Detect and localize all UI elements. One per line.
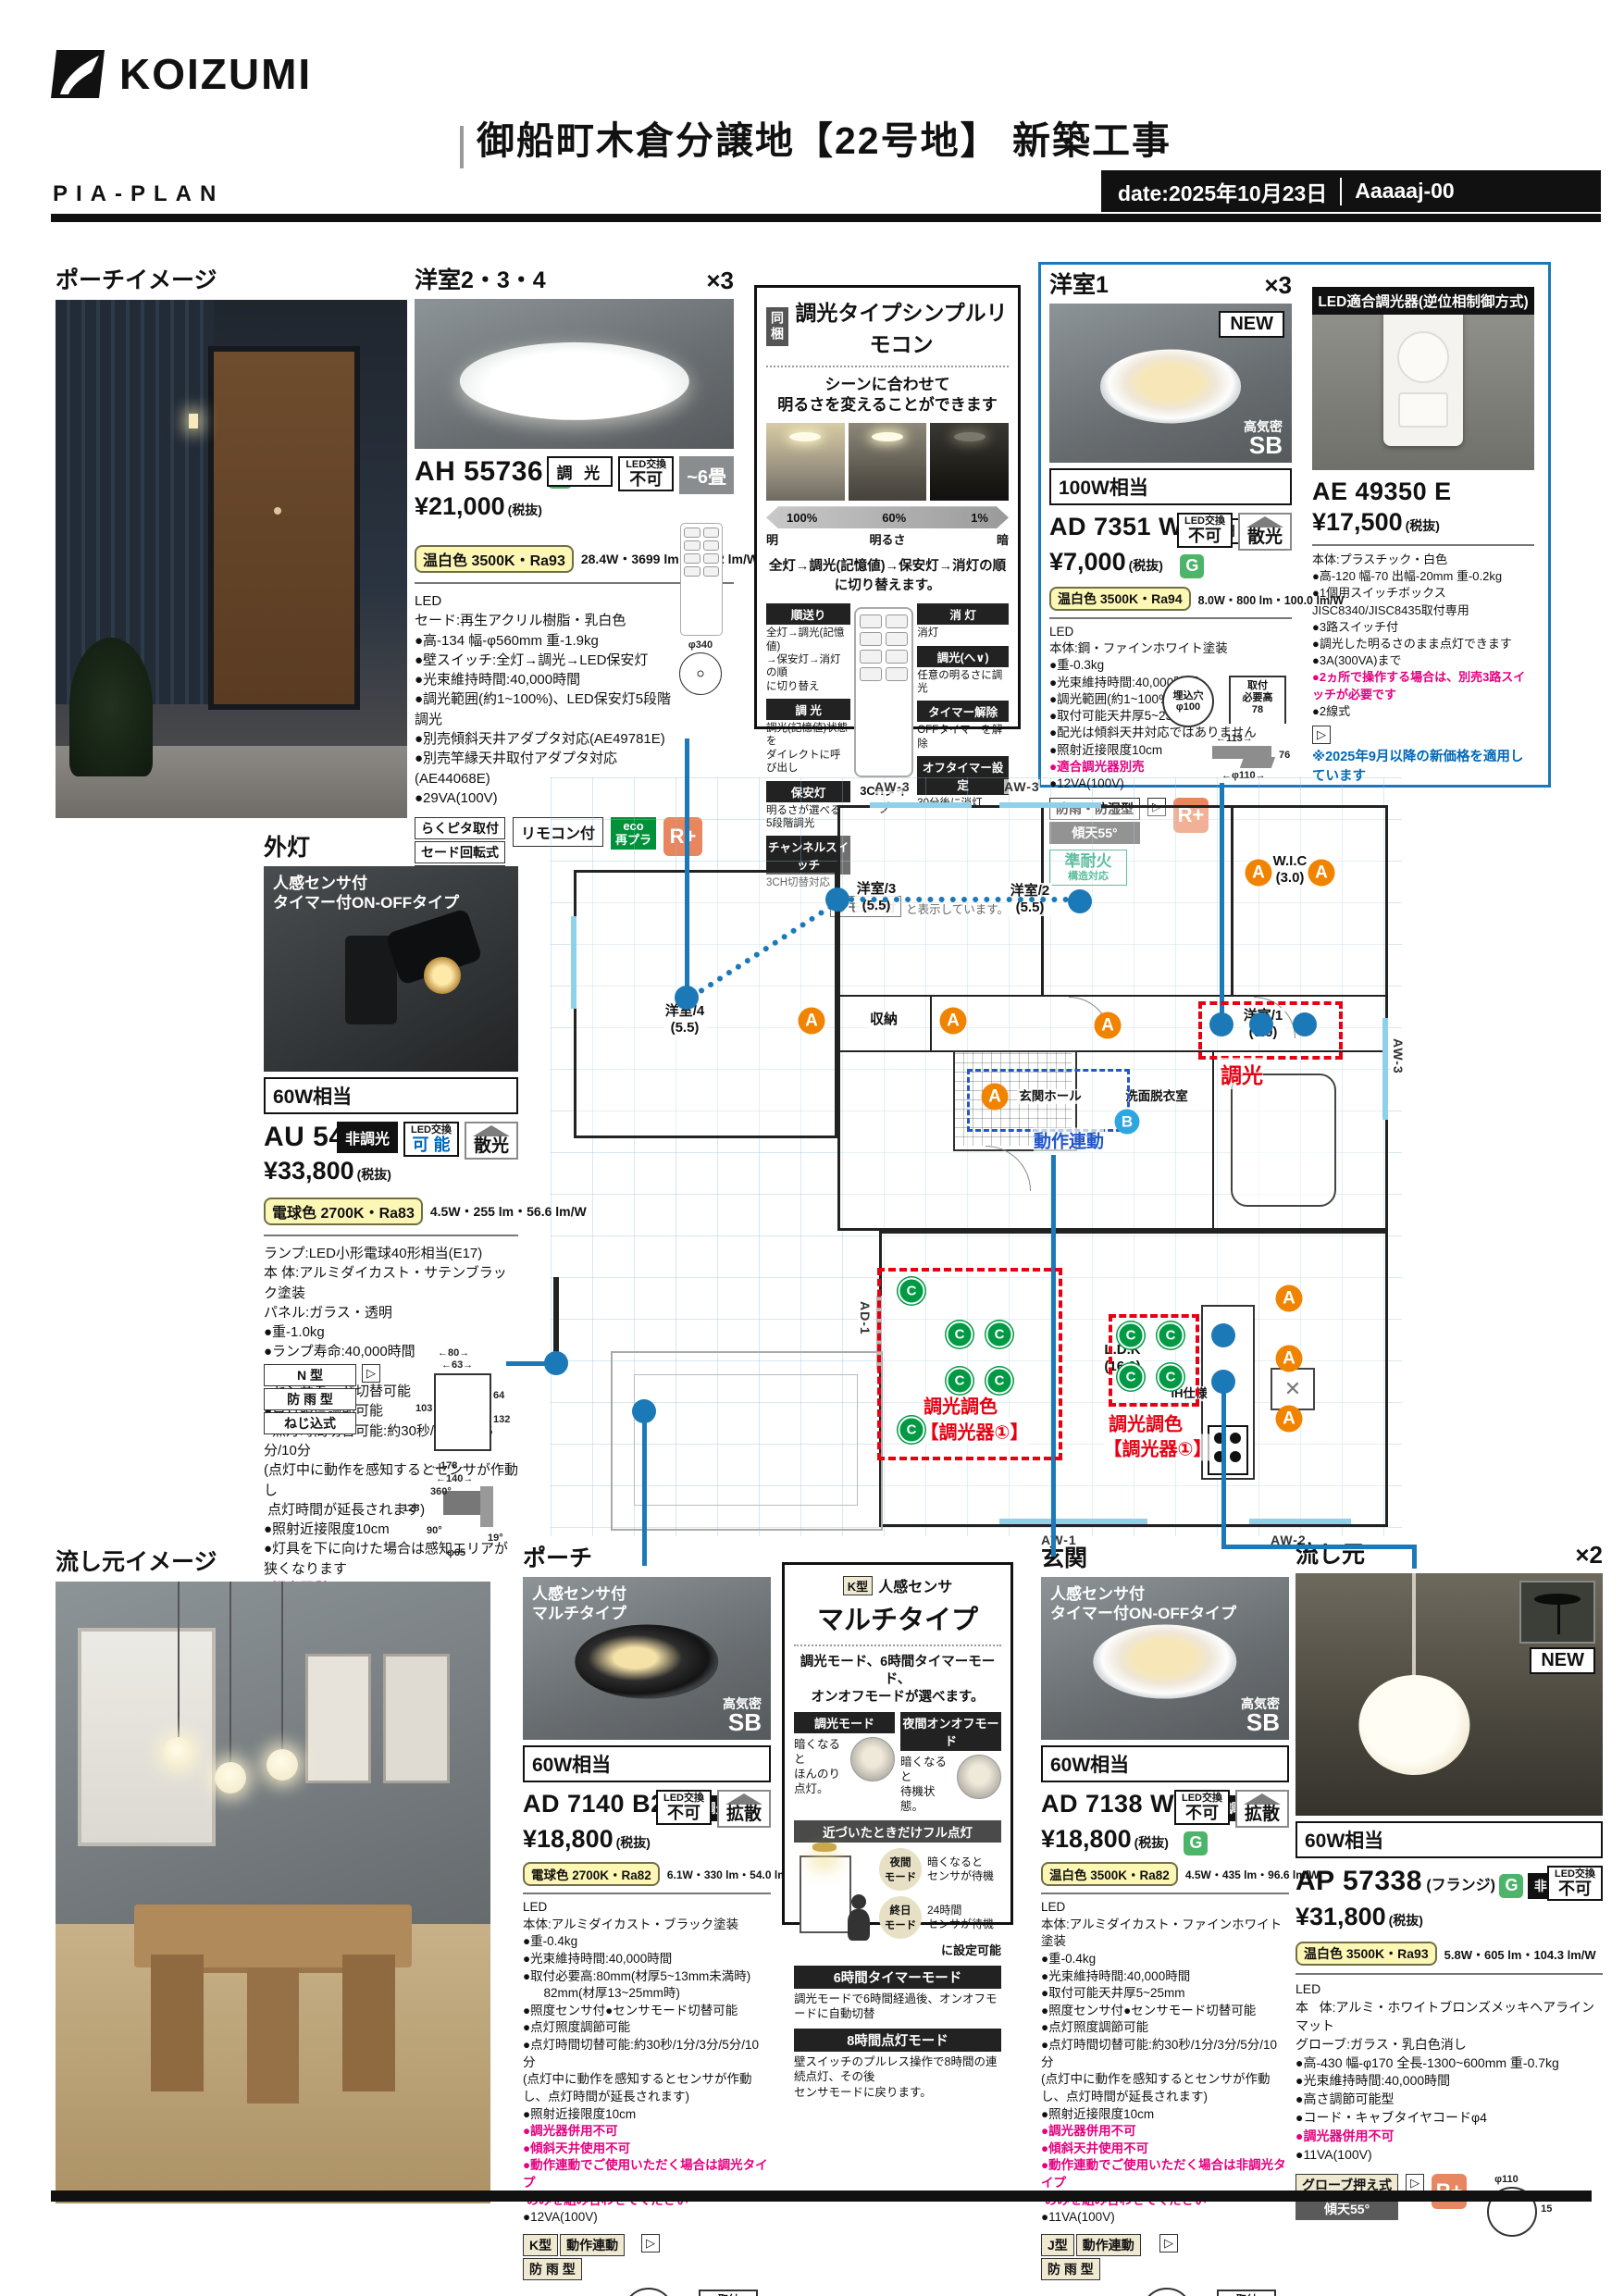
feature-line: ●照度センサ付●センサモード切替可能	[523, 2003, 771, 2020]
feature-list: 本体:プラスチック・白色●高-120 幅-70 出幅-20mm 重-0.2kg●…	[1312, 552, 1534, 720]
mode-photo	[957, 1755, 1001, 1799]
feature-line: セード:再生アクリル樹脂・乳白色	[415, 611, 679, 630]
marker-a: A	[1246, 860, 1272, 887]
sink-image-title: 流し元イメージ	[56, 1544, 490, 1577]
porch-image-photo	[56, 300, 407, 818]
marker-a: A	[1276, 1346, 1303, 1372]
feature-line: ●光束維持時間:40,000時間	[1041, 1968, 1289, 1986]
marker-c: C	[986, 1368, 1013, 1395]
feature-list: LED本 体:アルミ・ホワイトブロンズメッキヘアラインマットグローブ:ガラス・乳…	[1295, 1980, 1603, 2165]
white-downlight-image	[1093, 1624, 1236, 1699]
dimcolor-label: 調光調色	[1109, 1409, 1183, 1436]
feature-line: ●点灯時間切替可能:約30秒/1分/3分/5分/10分	[523, 2037, 771, 2071]
beam-icon	[725, 1793, 762, 1805]
feature-line: 本 体:アルミダイカスト・サテンブラック塗装	[264, 1263, 518, 1303]
connector-sink-h	[1221, 1545, 1417, 1549]
feature-line: LED	[1049, 624, 1292, 640]
multi-type-title: マルチタイプ	[794, 1598, 1001, 1637]
wall-art	[386, 1657, 447, 1781]
marker-c: C	[1158, 1364, 1184, 1391]
feature-list: LED本体:アルミダイカスト・ブラック塗装●重-0.4kg●光束維持時間:40,…	[523, 1899, 771, 2227]
sensor-label: 人感センサ	[878, 1574, 952, 1596]
bathtub	[1231, 1074, 1336, 1207]
tag: 防 雨 型	[1041, 2258, 1100, 2280]
yoshitsu234-model: AH 55736	[415, 456, 543, 487]
marker-a: A	[1308, 860, 1335, 887]
beam-icon	[1244, 1793, 1281, 1805]
feature-line: ●傾斜天井使用不可	[1041, 2141, 1289, 2158]
feature-line: ●光束維持時間:40,000時間	[1295, 2072, 1603, 2091]
remote-device	[854, 607, 913, 777]
porch-door-knob	[274, 507, 281, 515]
remote-function: 消 灯 消灯	[917, 603, 1009, 639]
g-badge: G	[1180, 554, 1204, 578]
catalog-page: KOIZUMI PIA-PLAN 御船町木倉分譲地【22号地】 新築工事 dat…	[0, 0, 1624, 2296]
black-downlight-image	[575, 1624, 718, 1699]
remote-panel-title: 調光タイプシンプルリモコン	[794, 295, 1009, 358]
title-tick	[460, 126, 464, 168]
connector-yo234	[685, 738, 689, 999]
feature-line: 本体:アルミダイカスト・ブラック塗装	[523, 1917, 771, 1934]
connector-porch	[642, 1414, 647, 1566]
feature-list: LED本体:アルミダイカスト・ファインホワイト塗装●重-0.4kg●光束維持時間…	[1041, 1899, 1289, 2227]
marker-c: C	[986, 1322, 1013, 1348]
brightness-arrow: 100%60%1%	[766, 506, 1009, 528]
marker-a: A	[1276, 1285, 1303, 1312]
tag: 防 雨 型	[264, 1388, 356, 1410]
feature-list: LEDセード:再生アクリル樹脂・乳白色●高-134 幅-φ560mm 重-1.9…	[415, 591, 679, 808]
remote-function: 調光(へ∨) 任意の明るさに調光	[917, 646, 1009, 696]
yoshitsu234-room-label: 洋室2・3・4	[415, 262, 546, 295]
feature-line: 本体:プラスチック・白色	[1312, 552, 1534, 568]
full-on-label: 近づいたときだけフル点灯	[794, 1820, 1001, 1843]
feature-line: 本 体:アルミ・ホワイトブロンズメッキヘアラインマット	[1295, 1999, 1603, 2036]
tag: N 型	[264, 1364, 356, 1386]
tatami-badge: ~6畳	[679, 456, 734, 494]
feature-line: ●調光器併用不可	[1295, 2128, 1603, 2146]
fixture-dot	[1211, 1323, 1235, 1347]
yoshitsu234-qty: ×3	[706, 267, 734, 295]
pendant-cord	[281, 1582, 283, 1756]
dimension-diagram: 埋込穴 φ100 取付 必要高 78 ←108→ 75 3 ←φ110→	[1041, 2288, 1289, 2296]
remote-function: 順送り 全灯→調光(記憶値) →保安灯→消灯の順 に切り替え	[766, 603, 850, 693]
tag: 動作連動	[560, 2234, 625, 2256]
sb-airtight-tag: 高気密SB	[1241, 1697, 1280, 1734]
feature-line: LED	[523, 1899, 771, 1917]
beam-icon	[1246, 516, 1283, 527]
feature-line: ●重-0.4kg	[523, 1933, 771, 1951]
downlight-image	[1100, 350, 1241, 423]
led-no-replace-badge: LED交換不可	[1547, 1866, 1603, 1901]
footer-rule	[51, 2191, 1592, 2202]
dimcolor-label: 調光調色	[924, 1392, 998, 1419]
feature-line: ●取付可能天井厚5~25mm	[1041, 1985, 1289, 2003]
wide-beam-badge: 拡散	[717, 1790, 771, 1828]
yoshitsu1-price: ¥7,000	[1049, 548, 1126, 576]
led-replace-ok-badge: LED交換可 能	[403, 1122, 459, 1157]
connector-sink-v2	[1412, 1545, 1417, 1569]
dimmable-badge: 調 光	[547, 456, 613, 487]
fixture-dot	[1293, 1012, 1317, 1036]
feature-line: LED	[1295, 1980, 1603, 1999]
color-temp-chip: 電球色 2700K・Ra83	[264, 1198, 423, 1225]
window-label: AW-3	[1004, 779, 1040, 794]
tax-label: (税抜)	[1389, 1913, 1423, 1928]
sink-title: 流し元	[1295, 1536, 1365, 1570]
g-badge: G	[1184, 1831, 1208, 1855]
marker-a: A	[940, 1008, 967, 1035]
remote-function: 調 光 調光(記憶値)状態を ダイレクトに呼び出し	[766, 699, 850, 776]
pendant-globe	[267, 1749, 298, 1781]
scene-dark	[930, 423, 1009, 501]
tax-label: (税抜)	[1406, 518, 1440, 533]
pendant-globe	[163, 1737, 194, 1769]
remote-function: タイマー解除 OFFタイマーを解除	[917, 701, 1009, 751]
dim-mode-col: 調光モード 暗くなると ほんのり点灯。	[794, 1712, 895, 1815]
watt-equivalent: 60W相当	[1295, 1821, 1603, 1858]
marker-c: C	[947, 1322, 973, 1348]
dimmer-card: LED適合調光器(逆位相制御方式) AE 49350 E ¥17,500(税抜)…	[1312, 287, 1534, 785]
color-temp-chip: 電球色 2700K・Ra82	[523, 1862, 660, 1886]
tax-label: (税抜)	[357, 1167, 391, 1182]
island-hatch: ✕	[1271, 1368, 1315, 1410]
type-tags: J型動作連動防 雨 型	[1041, 2234, 1152, 2280]
room-label-wash: 洗面脱衣室	[1123, 1089, 1190, 1104]
window	[81, 1632, 212, 1843]
outdoor-light-photo: 人感センサ付タイマー付ON-OFFタイプ	[264, 866, 518, 1072]
dimmer-model: AE 49350 E	[1312, 478, 1452, 505]
brand-header: KOIZUMI	[51, 48, 312, 100]
watt-equivalent: 60W相当	[1041, 1745, 1289, 1782]
pendant-cord	[229, 1582, 231, 1769]
dimmer-ref-label: 【調光器①】	[1104, 1434, 1212, 1461]
switch-sequence: 全灯→調光(記憶値)→保安灯→消灯の順に切り替えます。	[766, 555, 1009, 594]
dimmer-device-image	[1383, 315, 1463, 446]
feature-line: ●点灯時間切替可能:約30秒/1分/3分/5分/10分	[1041, 2037, 1289, 2071]
dotted-divider	[766, 366, 1009, 367]
feature-line: ●高-134 幅-φ560mm 重-1.9kg	[415, 631, 679, 651]
fixture-dot	[1211, 1370, 1235, 1394]
dimmer-photo	[1312, 315, 1534, 470]
timer8-label: 8時間点灯モード	[794, 2029, 1001, 2052]
led-no-replace-badge: LED交換不可	[656, 1790, 712, 1825]
multi-overlay: マルチタイプ	[532, 1604, 626, 1623]
fixture-dot	[1249, 1012, 1273, 1036]
color-temp-chip: 温白色 3500K・Ra82	[1041, 1862, 1178, 1886]
yoshitsu1-room-label: 洋室1	[1049, 267, 1109, 300]
g-badge: G	[1499, 1874, 1523, 1898]
color-temp-chip: 温白色 3500K・Ra94	[1049, 587, 1191, 611]
pendant-rod	[1412, 1573, 1416, 1682]
door-label: AD-1	[858, 1301, 873, 1335]
diameter-diagram: φ340	[675, 639, 726, 697]
pendant-globe-image	[1359, 1675, 1470, 1775]
linked-zone-label: 動作連動	[1034, 1128, 1104, 1153]
feature-line: ●重-0.3kg	[1049, 657, 1292, 674]
feature-line: ●調光した明るさのまま点灯できます	[1312, 636, 1534, 652]
marker-b: B	[1115, 1110, 1140, 1135]
tag: 動作連動	[1076, 2234, 1141, 2256]
type-tags: K型動作連動防 雨 型	[523, 2234, 634, 2280]
yoshitsu234-photo	[415, 299, 734, 449]
fixture-dot	[632, 1399, 656, 1423]
bundled-badge: 同梱	[766, 307, 788, 346]
outdoor-light-title: 外灯	[264, 829, 518, 863]
doc-code: Aaaaaj-00	[1355, 179, 1454, 204]
led-no-replace-badge: LED交換不可	[1174, 1790, 1230, 1825]
feature-line: ●点灯照度調節可能	[523, 2019, 771, 2037]
feature-line: LED	[415, 591, 679, 611]
marker-a: A	[1095, 1012, 1122, 1039]
window-label: AW-3	[1391, 1038, 1406, 1074]
ceiling-light-image	[459, 342, 688, 420]
sb-airtight-tag: 高気密SB	[1244, 420, 1283, 457]
feature-line: グローブ:ガラス・乳白色消し	[1295, 2036, 1603, 2054]
multi-type-panel: K型 人感センサ マルチタイプ 調光モード、6時間タイマーモード、 オンオフモー…	[782, 1562, 1013, 1925]
watt-equivalent: 60W相当	[523, 1745, 771, 1782]
night-mode-badge: 夜間 モード	[879, 1848, 922, 1891]
feature-line: ランプ:LED小形電球40形相当(E17)	[264, 1244, 518, 1263]
sensor-overlay: 人感センサ付	[1050, 1584, 1236, 1604]
feature-line: ●11VA(100V)	[1295, 2146, 1603, 2165]
scene-mid	[849, 423, 927, 501]
diffuse-badge: 散光	[1238, 513, 1292, 551]
watt-equivalent: 60W相当	[264, 1077, 518, 1114]
chair	[342, 1955, 394, 2091]
dimmer-price: ¥17,500	[1312, 508, 1403, 536]
orientation-icon: ▷	[1159, 2234, 1178, 2253]
genkan-price: ¥18,800	[1041, 1825, 1132, 1853]
marker-c: C	[899, 1278, 925, 1305]
mode-photo	[850, 1737, 895, 1781]
connector-yo1	[1220, 783, 1224, 1025]
chair	[247, 1967, 299, 2104]
feature-line: ●調光器併用不可	[523, 2123, 771, 2141]
header-rule	[51, 214, 1601, 222]
outdoor-light-card: 外灯 人感センサ付タイマー付ON-OFFタイプ 60W相当 AU 54113 ¥…	[264, 829, 518, 1632]
porch-slat-wall	[56, 300, 214, 704]
dim-zone-label: 調光	[1221, 1058, 1263, 1089]
genkan-photo: 人感センサ付タイマー付ON-OFFタイプ 高気密SB	[1041, 1577, 1289, 1740]
floor-plan: ✕ AW-3 AW-3 AW-3 AW-1 AW-2 AD-1 洋室/4(5.5…	[551, 777, 1402, 1536]
brand-name: KOIZUMI	[119, 49, 312, 99]
feature-line: (点灯中に動作を感知するとセンサが作動し、点灯時間が延長されます)	[523, 2071, 771, 2105]
feature-line: ●取付必要高:80mm(材厚5~13mm未満時)	[523, 1968, 771, 1986]
stove	[1208, 1425, 1248, 1475]
feature-line: ●2ヵ所で操作する場合は、別売3路スイッチが必要です	[1312, 669, 1534, 702]
marker-a: A	[1276, 1406, 1303, 1433]
feature-line: ●点灯照度調節可能	[1041, 2019, 1289, 2037]
tax-label: (税抜)	[1129, 558, 1163, 573]
wattage-spec: 28.4W・3699 lm・130.2 lm/W	[581, 550, 759, 568]
dimension-diagram: φ110 15	[1474, 2174, 1557, 2239]
date-divider	[1340, 178, 1342, 205]
porch-photo: 人感センサ付マルチタイプ 高気密SB	[523, 1577, 771, 1740]
timer6-desc: 調光モードで6時間経過後、オンオフモードに自動切替	[794, 1992, 1001, 2022]
marker-c: C	[1158, 1322, 1184, 1349]
tax-label: (税抜)	[1134, 1835, 1169, 1850]
led-no-replace-badge: LED交換不可	[618, 456, 674, 491]
porch-image-section: ポーチイメージ	[56, 262, 407, 818]
timer-overlay: タイマー付ON-OFFタイプ	[1050, 1604, 1236, 1623]
person-glyph	[848, 1909, 870, 1941]
porch-title: ポーチ	[523, 1540, 771, 1573]
marker-c: C	[947, 1368, 973, 1395]
beam-icon	[473, 1125, 510, 1136]
feature-line: ●11VA(100V)	[1041, 2209, 1289, 2227]
feature-line: 本体:鋼・ファインホワイト塗装	[1049, 640, 1292, 657]
dotted-divider	[794, 1644, 1001, 1646]
yoshitsu234-price: ¥21,000	[415, 492, 505, 520]
koizumi-logo-icon	[51, 48, 110, 100]
orientation-icon: ▷	[641, 2234, 660, 2253]
feature-line: ●高-120 幅-70 出幅-20mm 重-0.2kg	[1312, 568, 1534, 585]
fixture-dot	[825, 887, 849, 912]
watt-equivalent: 100W相当	[1049, 468, 1292, 505]
pendant-globe	[215, 1762, 246, 1793]
spotlight-lens	[424, 957, 461, 994]
marker-a: A	[799, 1008, 825, 1035]
feature-line: ●12VA(100V)	[523, 2209, 771, 2227]
yoshitsu1-qty: ×3	[1264, 271, 1292, 300]
feature-line: ●調光範囲(約1~100%)、LED保安灯5段階調光	[415, 689, 679, 729]
orientation-icon: ▷	[362, 1364, 380, 1383]
remote-lead-text: シーンに合わせて 明るさを変えることができます	[766, 375, 1009, 416]
dotted-link-yo3-yo2	[837, 897, 1080, 902]
sensor-overlay: 人感センサ付	[273, 874, 459, 893]
k-type-badge: K型	[843, 1576, 873, 1595]
fixture-dot	[1068, 889, 1092, 913]
tax-label: (税抜)	[616, 1835, 651, 1850]
feature-line: 82mm(材厚13~25mm時)	[523, 1985, 771, 2003]
color-temp-chip: 温白色 3500K・Ra93	[1295, 1942, 1437, 1966]
remote-thumbnail	[680, 523, 723, 636]
feature-line: ●高-430 幅-φ170 全長-1300~600mm 重-0.7kg	[1295, 2054, 1603, 2073]
feature-line: パネル:ガラス・透明	[264, 1303, 518, 1322]
orientation-icon: ▷	[1312, 726, 1331, 744]
feature-line: ●2線式	[1312, 703, 1534, 720]
wattage-spec: 5.8W・605 lm・104.3 lm/W	[1444, 1945, 1596, 1963]
orientation-icon: ▷	[1406, 2174, 1424, 2192]
porch-image-title: ポーチイメージ	[56, 262, 407, 295]
dimmer-ref-label: 【調光器①】	[921, 1418, 1029, 1445]
feature-line: (点灯中に動作を感知するとセンサが作動し、点灯時間が延長されます)	[1041, 2071, 1289, 2105]
feature-line: ●コード・キャブタイヤコードφ4	[1295, 2109, 1603, 2128]
room-label-closet: 収納	[868, 1011, 899, 1028]
yoshitsu1-photo: NEW 高気密SB	[1049, 304, 1292, 463]
timer6-label: 6時間タイマーモード	[794, 1966, 1001, 1989]
wattage-spec: 6.1W・330 lm・54.0 lm/W	[667, 1867, 801, 1882]
feature-line: ●照射近接限度10cm	[1041, 2106, 1289, 2124]
sink-card: 流し元 ×2 NEW 60W相当 AP 57338 (フランジ) G 非調光 ¥…	[1295, 1536, 1603, 2239]
tag: K型	[523, 2234, 558, 2256]
sb-airtight-tag: 高気密SB	[723, 1697, 762, 1734]
sensor-overlay: 人感センサ付	[532, 1584, 626, 1604]
page-title: 御船町木倉分譲地【22号地】 新築工事	[477, 109, 1172, 165]
new-badge: NEW	[1219, 311, 1284, 338]
tag: 防 雨 型	[523, 2258, 582, 2280]
feature-line: ●光束維持時間:40,000時間	[523, 1951, 771, 1968]
flange-label: (フランジ)	[1426, 1878, 1495, 1893]
date-bar: date:2025年10月23日 Aaaaaj-00	[1101, 170, 1601, 212]
sink-image-section: 流し元イメージ	[56, 1544, 490, 2203]
fixture-dot	[1209, 1012, 1233, 1036]
marker-c: C	[899, 1417, 925, 1444]
porch-door	[214, 352, 354, 704]
dimension-diagram: 埋込穴 φ100 取付 必要高 78 ←113→ 76 ←φ110→	[1188, 676, 1299, 787]
simple-remote-panel: 同梱 調光タイプシンプルリモコン シーンに合わせて 明るさを変えることができます…	[754, 285, 1021, 729]
scene-bright	[766, 423, 845, 501]
non-dimmable-badge: 非調光	[337, 1122, 398, 1153]
dimension-diagram: 埋込穴 φ100 取付 必要高 82 ←125→ 74 3 ←φ110→	[523, 2288, 771, 2296]
allday-mode-badge: 終日 モード	[879, 1896, 922, 1939]
tax-label: (税抜)	[508, 503, 542, 517]
sink-image-photo	[56, 1582, 490, 2203]
feature-line: ●照度センサ付●センサモード切替可能	[1041, 2003, 1289, 2020]
new-badge: NEW	[1530, 1647, 1595, 1674]
timer8-desc: 壁スイッチのプルレス操作で8時間の連続点灯、その後 センサモードに戻ります。	[794, 2054, 1001, 2100]
dimmer-header: LED適合調光器(逆位相制御方式)	[1312, 287, 1534, 315]
feature-line: 本体:アルミダイカスト・ファインホワイト塗装	[1041, 1917, 1289, 1951]
tag: J型	[1041, 2234, 1074, 2256]
feature-line: LED	[1041, 1899, 1289, 1917]
feature-line: ●高さ調節可能型	[1295, 2091, 1603, 2109]
feature-line: ●照射近接限度10cm	[523, 2106, 771, 2124]
plan-series-label: PIA-PLAN	[53, 181, 224, 207]
timer-overlay: タイマー付ON-OFFタイプ	[273, 893, 459, 912]
sink-model: AP 57338	[1295, 1866, 1422, 1896]
porch-wall-lamp	[189, 414, 198, 428]
diffuse-badge: 散光	[465, 1122, 518, 1160]
color-temp-chip: 温白色 3500K・Ra93	[415, 545, 574, 573]
feature-line: ●重-1.0kg	[264, 1322, 518, 1342]
tag: ねじ込式	[264, 1412, 356, 1434]
genkan-card: 玄関 人感センサ付タイマー付ON-OFFタイプ 高気密SB 60W相当 AD 7…	[1041, 1540, 1289, 2296]
feature-line: ●重-0.4kg	[1041, 1951, 1289, 1968]
connector-sink-v1	[1221, 1384, 1226, 1548]
feature-line: ●3A(300VA)まで	[1312, 652, 1534, 669]
wall-art	[308, 1657, 369, 1781]
canopy-inset-photo	[1519, 1581, 1595, 1644]
porch-price: ¥18,800	[523, 1825, 614, 1853]
marker-c: C	[1118, 1364, 1145, 1391]
date-text: date:2025年10月23日	[1118, 176, 1327, 207]
led-no-replace-badge: LED交換不可	[1177, 513, 1233, 548]
feature-line: ●光束維持時間:40,000時間	[415, 670, 679, 689]
sensor-illustration	[794, 1843, 874, 1954]
sink-qty: ×2	[1575, 1541, 1603, 1570]
pendant-cord	[178, 1582, 180, 1744]
feature-line: ●3路スイッチ付	[1312, 619, 1534, 636]
porch-light-glyph	[812, 1843, 837, 1852]
feature-line: ●1個用スイッチボックスJISC8340/JISC8435取付専用	[1312, 585, 1534, 618]
porch-plant	[69, 638, 153, 776]
feature-line: ●傾斜天井使用不可	[523, 2141, 771, 2158]
window-label: AW-3	[874, 779, 911, 794]
room-label-wic: W.I.C(3.0)	[1271, 853, 1309, 887]
multi-lead: 調光モード、6時間タイマーモード、 オンオフモードが選べます。	[794, 1654, 1001, 1706]
wide-beam-badge: 拡散	[1235, 1790, 1289, 1828]
feature-line: ●調光器併用不可	[1041, 2123, 1289, 2141]
type-tags: N 型防 雨 型ねじ込式	[264, 1364, 356, 1434]
feature-line: ●壁スイッチ:全灯→調光→LED保安灯	[415, 651, 679, 670]
fixture-dot	[675, 986, 699, 1010]
brightness-scene-thumbs	[766, 423, 1009, 501]
porch-card: ポーチ 人感センサ付マルチタイプ 高気密SB 60W相当 AD 7140 B27…	[523, 1540, 771, 2296]
fixture-dot	[544, 1351, 568, 1375]
sink-price: ¥31,800	[1295, 1903, 1386, 1930]
dimension-diagram: ←80→ ←63→ 103 64 132 ←178→ ←140→ 128 360…	[403, 1347, 523, 1570]
